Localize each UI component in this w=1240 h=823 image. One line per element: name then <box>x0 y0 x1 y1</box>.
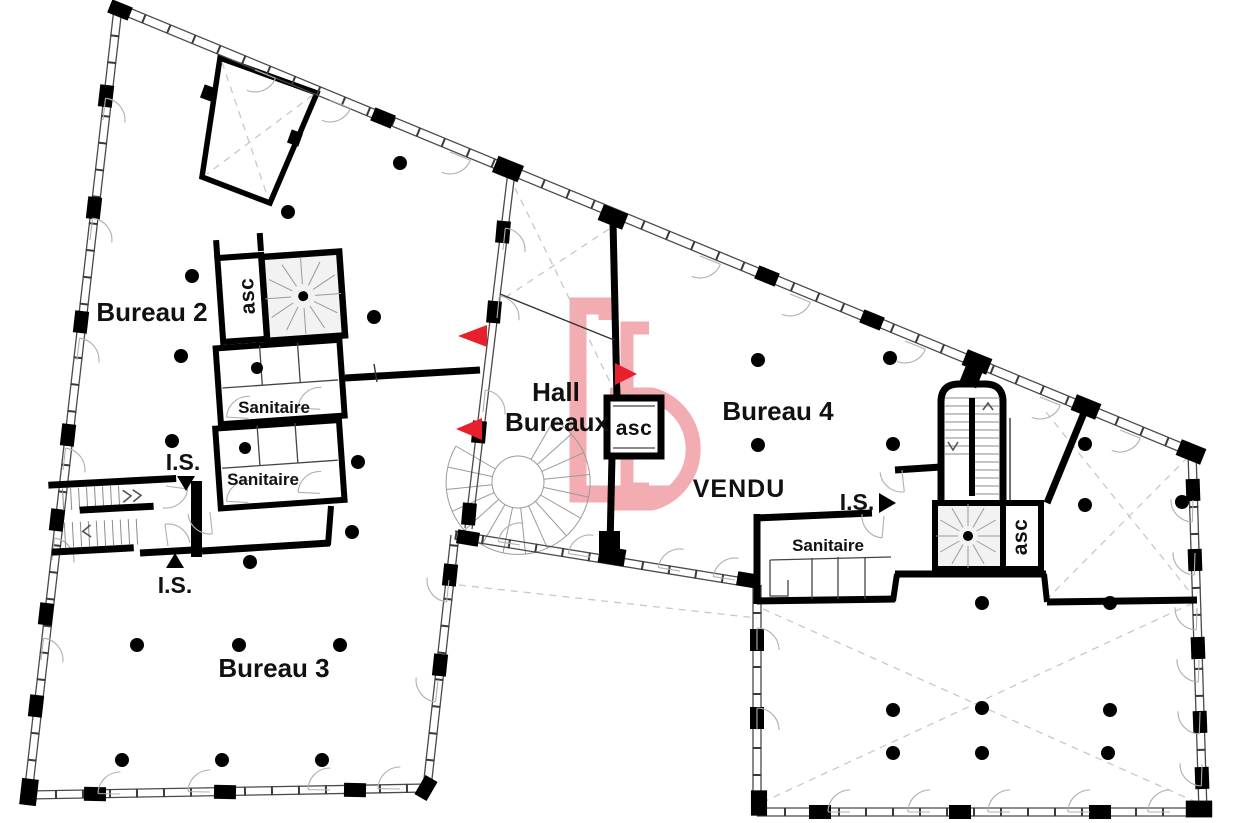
label-bureau2: Bureau 2 <box>96 297 207 327</box>
wall-is-right <box>895 467 941 470</box>
label-hall-line1: Hall <box>532 377 580 407</box>
label-bureau4: Bureau 4 <box>722 396 834 426</box>
label-asc-hall: asc <box>616 417 653 440</box>
label-sanitaire-upper: Sanitaire <box>238 398 310 417</box>
wall-step-2 <box>1044 574 1047 602</box>
floor-plan-svg: Bureau 2 Bureau 3 Bureau 4 Hall Bureaux … <box>0 0 1240 823</box>
label-is-lower: I.S. <box>158 572 193 598</box>
wall-sanitaire-right-bottom <box>757 599 895 601</box>
label-is-right: I.S. <box>840 489 875 515</box>
wall-step-1 <box>893 574 897 601</box>
label-vendu: VENDU <box>693 475 786 503</box>
right-stair-rail <box>969 398 975 496</box>
bureau2-core <box>202 228 357 509</box>
floor-plan: Bureau 2 Bureau 3 Bureau 4 Hall Bureaux … <box>0 0 1240 823</box>
label-hall-line2: Bureaux <box>505 407 610 437</box>
wall-right-wing-divider <box>1047 600 1197 602</box>
label-sanitaire-right: Sanitaire <box>792 536 864 555</box>
label-asc-right: asc <box>1009 519 1032 556</box>
label-is-upper: I.S. <box>166 449 201 475</box>
label-asc-left: asc <box>235 277 260 315</box>
label-bureau3: Bureau 3 <box>218 653 329 683</box>
label-sanitaire-lower: Sanitaire <box>227 470 299 489</box>
